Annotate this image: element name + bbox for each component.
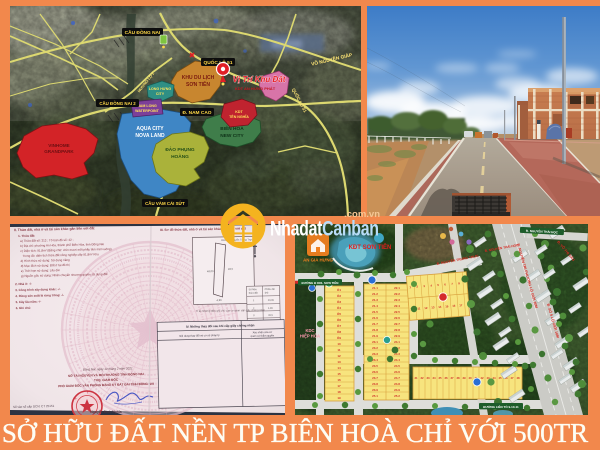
svg-text:6. Ghi chú:: 6. Ghi chú: bbox=[16, 306, 32, 310]
svg-text:38: 38 bbox=[456, 376, 460, 380]
svg-text:21.1: 21.1 bbox=[372, 286, 378, 290]
svg-text:24.6: 24.6 bbox=[394, 370, 400, 374]
svg-text:22.2: 22.2 bbox=[394, 292, 400, 296]
svg-text:40: 40 bbox=[468, 376, 472, 380]
svg-text:25.1: 25.1 bbox=[372, 394, 378, 398]
svg-text:24.8: 24.8 bbox=[394, 382, 400, 386]
svg-text:5. Cây lâu năm: -/-: 5. Cây lâu năm: -/- bbox=[15, 300, 41, 305]
svg-text:23.4: 23.4 bbox=[372, 358, 378, 362]
svg-text:49,09: 49,09 bbox=[207, 269, 214, 273]
svg-text:SƠN TIÊN: SƠN TIÊN bbox=[186, 80, 210, 88]
svg-text:47: 47 bbox=[510, 376, 514, 380]
svg-text:49,5: 49,5 bbox=[268, 314, 273, 317]
svg-text:CITY: CITY bbox=[156, 92, 165, 96]
svg-text:TUQ. GIÁM ĐỐC: TUQ. GIÁM ĐỐC bbox=[94, 377, 119, 383]
svg-text:21.3: 21.3 bbox=[372, 298, 378, 302]
svg-text:23.2: 23.2 bbox=[372, 346, 378, 350]
svg-text:21.6: 21.6 bbox=[372, 316, 378, 320]
svg-text:23.9: 23.9 bbox=[372, 388, 378, 392]
svg-text:GRANDPARK: GRANDPARK bbox=[44, 149, 74, 154]
svg-text:LONG HƯNG: LONG HƯNG bbox=[149, 87, 172, 91]
svg-text:2. Nhà ở: -/-: 2. Nhà ở: -/- bbox=[15, 282, 32, 286]
svg-text:48: 48 bbox=[516, 376, 520, 380]
svg-text:23.8: 23.8 bbox=[372, 382, 378, 386]
svg-text:11: 11 bbox=[337, 348, 341, 352]
svg-text:14: 14 bbox=[337, 366, 341, 370]
svg-text:WATERPOINT: WATERPOINT bbox=[135, 109, 159, 113]
svg-text:HOÀNG: HOÀNG bbox=[171, 153, 189, 160]
svg-text:Ô7: Ô7 bbox=[337, 323, 341, 328]
svg-text:35: 35 bbox=[438, 376, 442, 380]
svg-text:23.3: 23.3 bbox=[372, 352, 378, 356]
svg-text:Ô3: Ô3 bbox=[337, 299, 341, 304]
svg-text:CẦU ĐỒNG NAI: CẦU ĐỒNG NAI bbox=[125, 29, 161, 36]
svg-text:TÊN NGHĨA: TÊN NGHĨA bbox=[229, 114, 249, 119]
svg-text:24.4: 24.4 bbox=[394, 358, 400, 362]
svg-text:NOVA LAND: NOVA LAND bbox=[135, 133, 165, 139]
svg-text:ĐẢO PHỤNG: ĐẢO PHỤNG bbox=[165, 146, 195, 153]
svg-text:21.7: 21.7 bbox=[372, 322, 378, 326]
svg-text:25.2: 25.2 bbox=[394, 394, 400, 398]
svg-text:CẦU ĐỒNG NAI 2: CẦU ĐỒNG NAI 2 bbox=[99, 101, 136, 106]
svg-text:15: 15 bbox=[337, 372, 341, 376]
svg-text:22.5: 22.5 bbox=[394, 310, 400, 314]
svg-text:45: 45 bbox=[498, 376, 502, 380]
svg-text:31: 31 bbox=[414, 376, 418, 380]
svg-text:Nguyễn Đình Nghĩa: Nguyễn Đình Nghĩa bbox=[90, 410, 121, 414]
svg-text:21.4: 21.4 bbox=[372, 304, 378, 308]
svg-text:22.7: 22.7 bbox=[394, 322, 400, 326]
svg-text:22.1: 22.1 bbox=[394, 286, 400, 290]
svg-text:39: 39 bbox=[462, 376, 466, 380]
svg-text:49,5: 49,5 bbox=[228, 267, 234, 271]
svg-text:21.2: 21.2 bbox=[372, 292, 378, 296]
svg-text:34: 34 bbox=[432, 376, 436, 380]
svg-text:24.7: 24.7 bbox=[394, 376, 400, 380]
svg-text:ĐƯỜNG Đ KDL SƠN TIÊN: ĐƯỜNG Đ KDL SƠN TIÊN bbox=[302, 280, 339, 285]
svg-text:KHU DU LỊCH: KHU DU LỊCH bbox=[182, 75, 215, 81]
svg-text:Ô9: Ô9 bbox=[337, 335, 341, 340]
svg-text:Ô4: Ô4 bbox=[337, 305, 341, 310]
svg-text:42: 42 bbox=[480, 376, 484, 380]
svg-text:NAM LONG: NAM LONG bbox=[137, 104, 157, 108]
svg-text:quan có thẩm quyền: quan có thẩm quyền bbox=[251, 333, 275, 338]
svg-text:22.9: 22.9 bbox=[394, 334, 400, 338]
svg-text:KDC: KDC bbox=[305, 328, 314, 333]
svg-text:37: 37 bbox=[450, 376, 454, 380]
svg-text:17: 17 bbox=[337, 384, 341, 388]
svg-text:thửa đất: thửa đất bbox=[249, 292, 258, 295]
svg-text:Vị Trí Khu Đất: Vị Trí Khu Đất bbox=[233, 75, 286, 84]
svg-text:19: 19 bbox=[337, 396, 341, 400]
svg-text:13: 13 bbox=[337, 360, 341, 364]
svg-text:23.6: 23.6 bbox=[372, 370, 378, 374]
svg-text:1. Thửa đất:: 1. Thửa đất: bbox=[18, 234, 35, 238]
svg-text:22.4: 22.4 bbox=[394, 304, 400, 308]
svg-text:KDT AN HƯNG PHÁT: KDT AN HƯNG PHÁT bbox=[235, 86, 276, 91]
svg-text:22.6: 22.6 bbox=[394, 316, 400, 320]
svg-text:24.5: 24.5 bbox=[394, 364, 400, 368]
svg-text:32: 32 bbox=[420, 376, 424, 380]
svg-text:HIỆP HÒA: HIỆP HÒA bbox=[300, 334, 320, 339]
svg-text:Ô8: Ô8 bbox=[337, 329, 341, 334]
svg-text:AQUA CITY: AQUA CITY bbox=[136, 126, 164, 132]
svg-text:Ô2: Ô2 bbox=[337, 293, 341, 298]
svg-text:33: 33 bbox=[426, 376, 430, 380]
svg-text:23.5: 23.5 bbox=[372, 364, 378, 368]
svg-text:23.7: 23.7 bbox=[372, 376, 378, 380]
svg-text:21.9: 21.9 bbox=[372, 334, 378, 338]
svg-text:KĐT SƠN TIÊN: KĐT SƠN TIÊN bbox=[349, 243, 392, 251]
svg-text:22.8: 22.8 bbox=[394, 328, 400, 332]
svg-text:NEW CITY: NEW CITY bbox=[220, 133, 244, 139]
svg-text:10: 10 bbox=[337, 342, 341, 346]
svg-text:Đ. NAM CAO: Đ. NAM CAO bbox=[182, 110, 211, 116]
svg-text:21.8: 21.8 bbox=[372, 328, 378, 332]
svg-text:22.3: 22.3 bbox=[394, 298, 400, 302]
svg-text:Ô1: Ô1 bbox=[337, 287, 341, 292]
svg-text:16: 16 bbox=[337, 378, 341, 382]
svg-text:49,09: 49,09 bbox=[268, 299, 275, 302]
svg-text:AN GIA HƯNG: AN GIA HƯNG bbox=[303, 258, 333, 263]
svg-text:24.9: 24.9 bbox=[394, 388, 400, 392]
svg-text:18: 18 bbox=[337, 390, 341, 394]
svg-text:4,99: 4,99 bbox=[268, 307, 273, 310]
svg-text:21.5: 21.5 bbox=[372, 310, 378, 314]
svg-text:Ô6: Ô6 bbox=[337, 317, 341, 322]
svg-text:CẦU VÀM CÁI SỨT: CẦU VÀM CÁI SỨT bbox=[145, 201, 185, 206]
svg-text:(m): (m) bbox=[265, 291, 269, 294]
svg-text:VINHOME: VINHOME bbox=[48, 143, 69, 148]
svg-text:Ô5: Ô5 bbox=[337, 311, 341, 316]
svg-text:36: 36 bbox=[444, 376, 448, 380]
svg-text:KDT: KDT bbox=[235, 110, 243, 114]
svg-text:24.1: 24.1 bbox=[394, 340, 400, 344]
svg-text:ĐƯỜNG LIÊN TỔ 9-10-11: ĐƯỜNG LIÊN TỔ 9-10-11 bbox=[483, 404, 519, 409]
svg-text:23.1: 23.1 bbox=[372, 340, 378, 344]
svg-text:4,99: 4,99 bbox=[217, 298, 223, 302]
svg-text:12: 12 bbox=[337, 354, 341, 358]
